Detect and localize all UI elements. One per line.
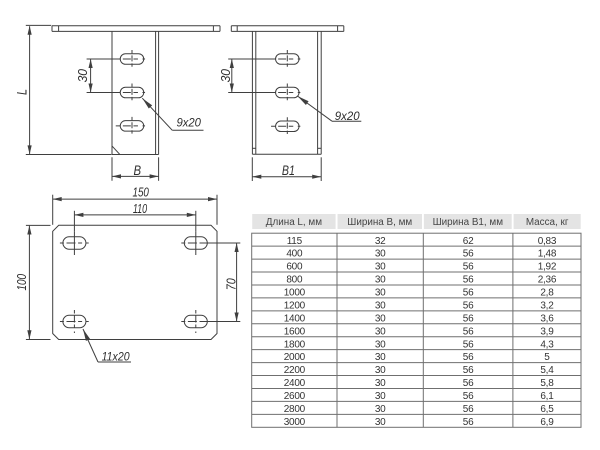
svg-text:100: 100	[14, 273, 29, 290]
svg-text:1800: 1800	[284, 339, 306, 350]
svg-text:6,5: 6,5	[540, 404, 554, 415]
svg-text:30: 30	[375, 288, 386, 299]
svg-text:6,9: 6,9	[540, 417, 554, 428]
svg-text:5,4: 5,4	[540, 365, 554, 376]
svg-text:56: 56	[463, 300, 474, 311]
svg-text:56: 56	[463, 288, 474, 299]
svg-text:30: 30	[375, 417, 386, 428]
svg-text:3,6: 3,6	[540, 313, 554, 324]
svg-text:110: 110	[133, 201, 148, 216]
svg-text:4,3: 4,3	[540, 339, 554, 350]
svg-text:30: 30	[375, 378, 386, 389]
svg-text:1200: 1200	[284, 300, 306, 311]
svg-text:1600: 1600	[284, 326, 306, 337]
svg-text:56: 56	[463, 262, 474, 273]
svg-text:1,92: 1,92	[538, 262, 557, 273]
svg-text:400: 400	[286, 249, 303, 260]
svg-text:56: 56	[463, 275, 474, 286]
svg-text:2400: 2400	[284, 378, 306, 389]
svg-text:56: 56	[463, 378, 474, 389]
svg-text:150: 150	[133, 184, 150, 199]
svg-text:56: 56	[463, 352, 474, 363]
svg-text:56: 56	[463, 249, 474, 260]
svg-text:30: 30	[375, 404, 386, 415]
svg-text:Длина L, мм: Длина L, мм	[266, 217, 322, 228]
svg-text:56: 56	[463, 339, 474, 350]
svg-text:30: 30	[375, 365, 386, 376]
svg-text:B1: B1	[282, 163, 295, 178]
svg-text:3,9: 3,9	[540, 326, 554, 337]
svg-text:600: 600	[286, 262, 303, 273]
svg-text:56: 56	[463, 313, 474, 324]
svg-text:30: 30	[375, 391, 386, 402]
svg-text:Ширина B1, мм: Ширина B1, мм	[433, 217, 504, 228]
svg-text:Масса, кг: Масса, кг	[526, 217, 569, 228]
svg-text:30: 30	[375, 275, 386, 286]
svg-text:L: L	[13, 89, 29, 95]
svg-text:30: 30	[375, 339, 386, 350]
svg-text:2,8: 2,8	[540, 288, 554, 299]
svg-text:0,83: 0,83	[538, 236, 557, 247]
svg-text:3,2: 3,2	[540, 300, 554, 311]
svg-text:2200: 2200	[284, 365, 306, 376]
svg-text:2600: 2600	[284, 391, 306, 402]
svg-text:2,36: 2,36	[538, 275, 557, 286]
svg-text:2800: 2800	[284, 404, 306, 415]
svg-text:9x20: 9x20	[335, 109, 360, 123]
svg-text:2000: 2000	[284, 352, 306, 363]
svg-text:6,1: 6,1	[540, 391, 554, 402]
svg-text:Ширина B, мм: Ширина B, мм	[347, 217, 412, 228]
svg-text:30: 30	[375, 313, 386, 324]
svg-text:1,48: 1,48	[538, 249, 557, 260]
svg-text:56: 56	[463, 391, 474, 402]
svg-text:30: 30	[218, 68, 233, 82]
svg-text:B: B	[134, 163, 142, 178]
svg-text:56: 56	[463, 365, 474, 376]
svg-text:9x20: 9x20	[176, 116, 201, 130]
svg-text:30: 30	[375, 262, 386, 273]
svg-text:800: 800	[286, 275, 303, 286]
svg-text:1400: 1400	[284, 313, 306, 324]
svg-text:62: 62	[463, 236, 474, 247]
svg-text:70: 70	[223, 278, 238, 291]
svg-text:3000: 3000	[284, 417, 306, 428]
svg-text:30: 30	[375, 249, 386, 260]
svg-text:1000: 1000	[284, 288, 306, 299]
svg-text:32: 32	[375, 236, 386, 247]
svg-text:5,8: 5,8	[540, 378, 554, 389]
svg-text:115: 115	[287, 236, 303, 247]
svg-text:30: 30	[375, 352, 386, 363]
svg-text:56: 56	[463, 326, 474, 337]
svg-text:5: 5	[544, 352, 550, 363]
svg-text:30: 30	[375, 300, 386, 311]
svg-text:56: 56	[463, 417, 474, 428]
svg-text:30: 30	[75, 68, 90, 82]
svg-text:56: 56	[463, 404, 474, 415]
svg-text:30: 30	[375, 326, 386, 337]
svg-text:11x20: 11x20	[102, 349, 130, 363]
